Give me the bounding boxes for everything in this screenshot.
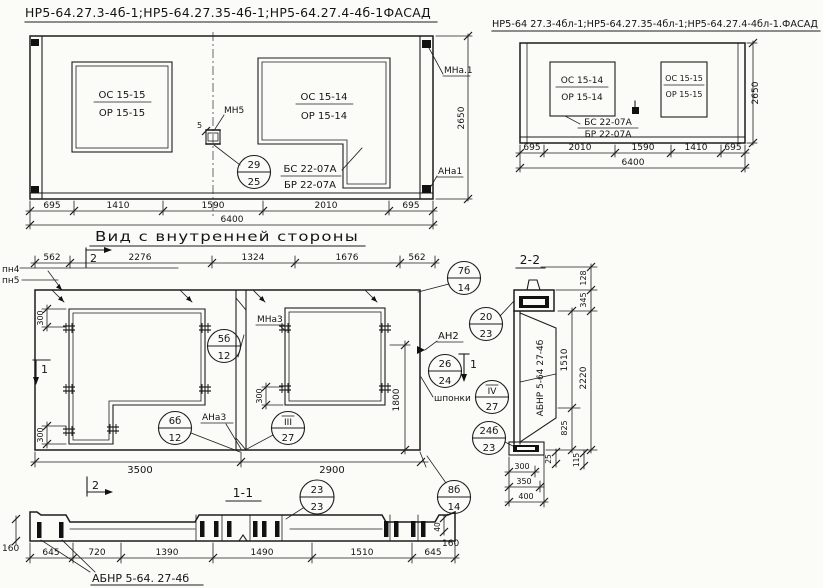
dim: 695 [43,201,60,211]
dim-1510: 1510 [560,348,570,371]
window-mark-os1515: ОС 15-15 [98,90,145,101]
dim-1800: 1800 [392,388,402,411]
section-mark-1-left: 1 [33,360,50,385]
mn5-size-dim: 5 [197,121,202,130]
dim-300: 300 [255,388,264,403]
dim-300: 300 [36,310,45,325]
callout-num: IV [488,387,498,397]
callout-iii-27: III 27 [247,412,305,450]
dim-825: 825 [560,420,569,435]
callout-29-25: 29 25 [238,156,271,189]
section-mark-2-bottom: 2 [87,477,113,496]
inner-bottom-dims: 3500 2900 [31,452,428,476]
facade-right-dims: 2650 695 2010 1590 1410 695 6400 [516,39,761,172]
callout-den: 12 [169,433,182,444]
callout-24b-23: 24б 23 [473,422,514,455]
mna3-label: МНа3 [257,315,283,325]
callout-23-23: 23 23 [286,480,334,519]
callout-20-23: 20 23 [470,301,515,341]
window-mark-os1514: ОС 15-14 [561,76,604,86]
dim: 2010 [569,143,592,153]
sill-mark-br: БР 22-07А [284,180,336,191]
sill-mark-br: БР 22-07А [585,130,633,140]
inner-window-right [279,308,391,405]
dim: 1676 [336,253,359,263]
dim-total: 6400 [622,158,645,168]
dim: 1410 [107,201,130,211]
dim-160-right: 160 [442,539,459,549]
callout-7b-14: 7б 14 [418,262,481,295]
window-mark-os1514: ОС 15-14 [300,92,347,103]
abnr-label-group: АБНР 5-64. 27-4б [41,540,203,585]
member-label: АБНР 5-64 27-4б [536,339,546,416]
dim-128: 128 [579,270,588,285]
inner-1800-dim: 1800 [390,341,410,454]
sill-mark-bs: БС 22-07А [584,118,632,128]
facade-right-title: НР5-64 27.3-4бл-1;НР5-64.27.35-4бл-1;НР5… [492,19,818,30]
section-2-2-view: 2-2 АБНР 5-64 27-4б 128 [505,253,597,507]
pn5-label: пн5 [2,276,20,286]
dim-2900: 2900 [319,465,344,476]
dim: 720 [88,548,105,558]
callout-26-24: 26 24 [429,355,462,388]
dim: 2010 [315,201,338,211]
callout-num: III [284,418,292,428]
callout-8b-14: 8б 14 [427,456,471,514]
dim-25: 25 [544,454,553,464]
pn-labels: пн4 пн5 [2,265,178,290]
callout-den: 27 [282,433,295,444]
pn4-label: пн4 [2,265,20,275]
dim: 562 [43,253,60,263]
callout-num: 20 [480,312,493,323]
dim-400: 400 [518,492,533,501]
callout-6b-12: 6б 12 [159,412,241,453]
ana1-label: АНа1 [438,167,462,177]
dim: 645 [424,548,441,558]
callout-num: 8б [448,485,461,496]
callout-num: 6б [169,416,182,427]
callout-den: 23 [311,502,324,513]
callout-num: 24б [480,426,499,437]
dim: 1490 [251,548,274,558]
callout-num: 26 [439,359,452,370]
facade-right-window-2: ОС 15-15 ОР 15-15 [661,62,707,117]
section-2-2-dims: 128 345 1510 2220 825 25 115 300 350 400 [505,263,597,507]
section-2-2-body: АБНР 5-64 27-4б [509,280,556,455]
callout-den: 25 [248,177,261,188]
section-mark-label: 2 [92,479,99,492]
window-mark-or1515: ОР 15-15 [666,90,703,99]
dim-2650: 2650 [457,106,467,129]
dim: 562 [408,253,425,263]
dim: 1510 [351,548,374,558]
dim-total: 6400 [221,215,244,225]
callout-num: 5б [218,334,231,345]
callout-den: 24 [439,376,452,387]
dim: 695 [724,143,741,153]
drawing-canvas: НР5-64.27.3-4б-1;НР5-64.27.35-4б-1;НР5-6… [0,0,823,588]
dim: 1324 [242,253,265,263]
dim-160-left: 160 [2,544,19,554]
section-1-1-title: 1-1 [233,486,254,500]
section-mark-label: 2 [90,252,97,265]
dim-300: 300 [514,462,529,471]
facade-right-sill-mark: БС 22-07А БР 22-07А [565,101,639,140]
dim: 1410 [685,143,708,153]
dim: 695 [523,143,540,153]
dim-300: 300 [36,427,45,442]
dim-345: 345 [579,292,588,307]
window-mark-or1514: ОР 15-14 [301,111,347,122]
callout-num: 7б [458,266,471,277]
callout-num: 29 [248,160,261,171]
ana3-label: АНа3 [202,413,226,423]
callout-den: 23 [483,443,496,454]
dim-2220: 2220 [579,366,589,389]
mn5-anchor-detail: 5 МН5 [197,106,244,165]
window-mark-os1515: ОС 15-15 [665,74,703,83]
section-mark-label: 1 [41,363,48,376]
an2-label-group: АН2 [417,331,463,354]
callout-den: 12 [218,351,231,362]
callout-den: 14 [458,283,471,294]
facade-left-window-1: ОС 15-15 ОР 15-15 [72,62,172,152]
callout-iv-27: IV 27 [476,381,509,414]
window-mark-or1515: ОР 15-15 [99,108,145,119]
blueprint-page: НР5-64.27.3-4б-1;НР5-64.27.35-4б-1;НР5-6… [0,0,823,588]
dim: 2276 [129,253,152,263]
section-2-2-title: 2-2 [520,253,541,267]
callout-den: 27 [486,402,499,413]
dim: 1590 [632,143,655,153]
dim-350: 350 [516,477,531,486]
mn5-label: МН5 [224,106,244,116]
inner-view: Вид с внутренней стороны 562 2276 1324 1… [2,229,514,476]
section-mark-2-top: 2 [86,247,112,267]
member-label: АБНР 5-64. 27-4б [92,572,189,585]
inner-window-left [63,309,211,444]
section-mark-label: 1 [470,358,477,371]
facade-left-window-2: ОС 15-14 ОР 15-14 БС 22-07А БР 22-07А [258,58,390,191]
section-1-1-view: 2 1-1 23 23 8б 14 [2,456,471,585]
ana3-label-group: АНа3 [201,413,241,449]
dim-2650: 2650 [751,81,761,104]
dim: 645 [42,548,59,558]
shponki-label: шпонки [434,394,471,404]
callout-den: 14 [448,502,461,513]
dim-115: 115 [572,453,581,468]
inner-view-title: Вид с внутренней стороны [95,229,359,245]
callout-5b-12: 5б 12 [208,330,245,363]
an2-label: АН2 [438,331,459,342]
section-1-1-profile [30,512,455,541]
dim: 695 [402,201,419,211]
facade-left-view: НР5-64.27.3-4б-1;НР5-64.27.35-4б-1;НР5-6… [25,6,473,229]
facade-right-view: НР5-64 27.3-4бл-1;НР5-64.27.35-4бл-1;НР5… [492,19,820,172]
dim: 1390 [156,548,179,558]
facade-left-title: НР5-64.27.3-4б-1;НР5-64.27.35-4б-1;НР5-6… [25,6,431,20]
dim-3500: 3500 [127,465,152,476]
dim: 1590 [202,201,225,211]
window-mark-or1514: ОР 15-14 [561,93,603,103]
sill-mark-bs: БС 22-07А [284,164,337,175]
facade-right-window-1: ОС 15-14 ОР 15-14 [550,62,615,116]
callout-num: 23 [311,485,324,496]
dim-40: 40 [433,522,442,532]
callout-den: 23 [480,329,493,340]
